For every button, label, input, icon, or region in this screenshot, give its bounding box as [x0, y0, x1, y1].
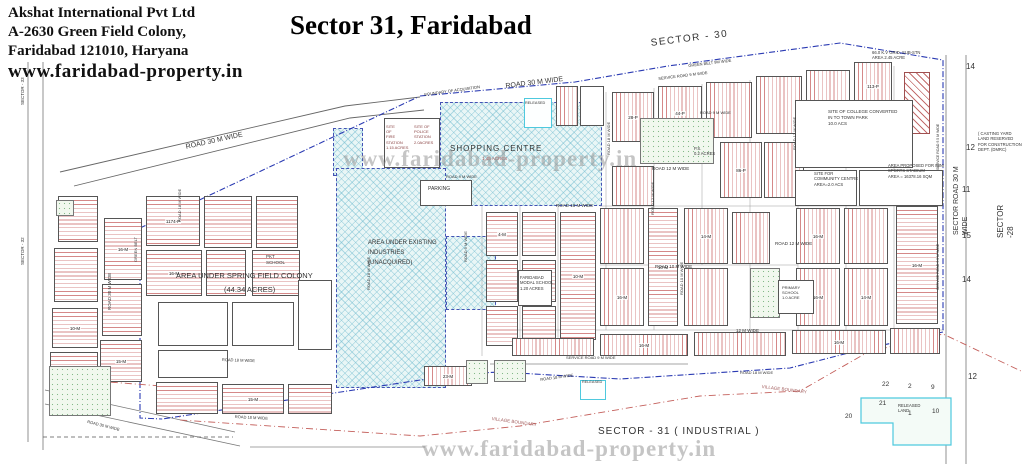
plot-block-label: 16-M: [812, 234, 824, 239]
plot-block: [580, 380, 606, 400]
company-address-1: A-2630 Green Field Colony,: [8, 23, 278, 42]
plot-block-label: 14-M: [700, 234, 712, 239]
page-title: Sector 31, Faridabad: [290, 10, 532, 41]
plot-block: [750, 268, 780, 318]
company-name: Akshat International Pvt Ltd: [8, 4, 278, 23]
company-website: www.faridabad-property.in: [8, 60, 278, 84]
road-line: [74, 110, 424, 186]
plot-block-label: 16-M: [168, 271, 180, 276]
plot-block: 86-P: [720, 142, 762, 198]
plot-block: [158, 302, 228, 346]
plot-block: [256, 196, 298, 248]
plot-block: [890, 328, 940, 354]
plot-block: [204, 196, 252, 248]
company-address-2: Faridabad 121010, Haryana: [8, 42, 278, 61]
plot-block-label: 44-P: [674, 111, 686, 116]
plot-block: [512, 338, 594, 356]
plot-block-label: 15-M: [115, 359, 127, 364]
plot-block: [795, 100, 913, 168]
plot-block: [518, 270, 552, 306]
plot-block-label: 86-P: [735, 168, 747, 173]
plot-block-label: 10-M: [69, 326, 81, 331]
plot-block-label: 16-M: [638, 343, 650, 348]
plot-block: [466, 360, 488, 384]
plot-block: [102, 284, 142, 336]
plot-block-label: 16-M: [117, 247, 129, 252]
plot-block: 15-M: [222, 384, 284, 414]
plot-block: [844, 208, 888, 264]
sector-31-faridabad-map-page: { "header": { "line1": "Akshat Internati…: [0, 0, 1024, 464]
plot-block: [49, 366, 111, 416]
plot-block-label: 16-M: [833, 340, 845, 345]
plot-block: [420, 180, 472, 206]
plot-block: 16-M: [600, 268, 644, 326]
plot-block: [156, 382, 218, 414]
plot-block: [158, 350, 228, 378]
plot-block: [206, 250, 246, 296]
plot-block: [640, 118, 714, 164]
plot-block: [859, 170, 943, 206]
plot-block: [524, 98, 552, 128]
plot-block: [54, 248, 98, 302]
plot-block: 16-M: [792, 330, 886, 354]
plot-block-label: 15-M: [247, 397, 259, 402]
plot-block: [732, 212, 770, 264]
plot-block: [580, 86, 604, 126]
plot-block-label: 1174-P: [165, 219, 181, 224]
plot-block: [612, 166, 654, 206]
plot-block: [232, 302, 294, 346]
plot-block: 16-M: [600, 334, 688, 356]
plot-block: 16-M: [146, 250, 202, 296]
plot-block: [384, 118, 440, 168]
plot-block: 14-M: [844, 268, 888, 326]
plot-block-label: 28-P: [627, 115, 639, 120]
plot-block: [600, 208, 644, 264]
plot-block-label: 16-M: [616, 295, 628, 300]
road-line: [28, 62, 43, 450]
plot-block: [778, 280, 814, 314]
plot-block: 10-M: [52, 308, 98, 348]
plot-block-label: 113-P: [866, 84, 880, 89]
plot-block: [522, 212, 556, 256]
plot-block: [486, 260, 518, 302]
plot-block: 10-M: [560, 212, 596, 340]
plot-block-label: 14-M: [860, 295, 872, 300]
plot-block: [494, 360, 526, 382]
plot-block: 23-M: [424, 366, 472, 386]
plot-block: 16-M: [796, 208, 840, 264]
plot-block: [694, 332, 786, 356]
plot-block: 4-M: [486, 212, 518, 256]
plot-block-label: 10-M: [572, 274, 584, 279]
plot-block: 1174-P: [146, 196, 200, 246]
plot-block: 14-M: [684, 208, 728, 264]
plot-block: [288, 384, 332, 414]
plot-block: [795, 170, 857, 206]
plot-block-label: 16-M: [911, 263, 923, 268]
plot-block-label: 4-M: [497, 232, 507, 237]
company-address-block: Akshat International Pvt Ltd A-2630 Gree…: [8, 4, 278, 84]
plot-block: [298, 280, 332, 350]
plot-block-label: 10-M: [657, 265, 669, 270]
plot-block: [684, 268, 728, 326]
released-land-polygon: [861, 398, 951, 445]
plot-block: 10-M: [648, 208, 678, 326]
plot-block: [56, 200, 74, 216]
plot-block: 16-M: [896, 206, 938, 324]
plot-block-label: 23-M: [442, 374, 454, 379]
road-line: [60, 97, 420, 172]
plot-block: [252, 250, 300, 296]
plot-block: [556, 86, 578, 126]
plot-block: 16-M: [104, 218, 142, 280]
